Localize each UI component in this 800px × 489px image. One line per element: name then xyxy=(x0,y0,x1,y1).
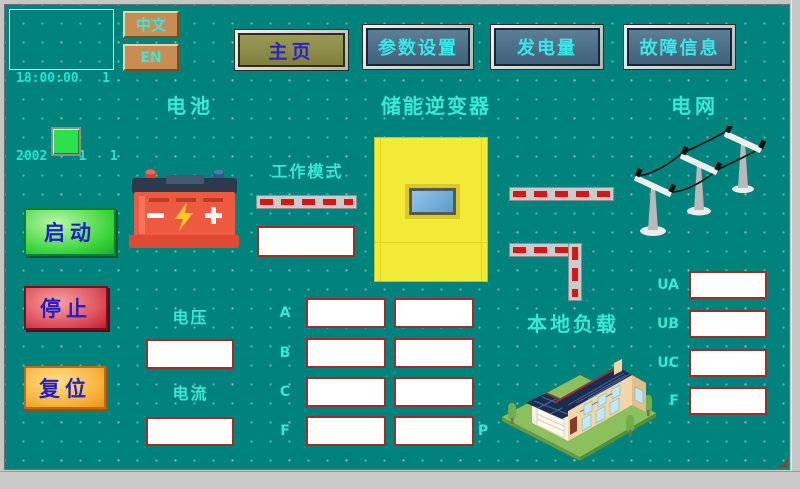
phase-c-grid-value-box[interactable] xyxy=(394,377,474,407)
nav-home-label: 主页 xyxy=(238,33,345,67)
stop-button[interactable]: 停止 xyxy=(24,286,108,330)
clock-display: 18:00:00 1 2002 1 1 xyxy=(9,9,114,70)
inverter-section-label: 储能逆变器 xyxy=(361,90,511,119)
grid-ub-label: UB xyxy=(639,316,679,332)
inverter-to-grid-pipe xyxy=(509,187,614,201)
phase-b-label: B xyxy=(276,345,294,361)
nav-faults-button[interactable]: 故障信息 xyxy=(623,24,736,70)
grid-uc-value-box[interactable] xyxy=(689,349,767,377)
inverter-to-load-pipe-vertical xyxy=(568,243,582,301)
inverter-screen xyxy=(405,184,460,219)
run-indicator-lamp xyxy=(51,127,81,156)
phase-a-label: A xyxy=(276,305,294,321)
work-mode-pipe xyxy=(256,195,357,209)
voltage-value-box[interactable] xyxy=(146,339,234,369)
nav-params-label: 参数设置 xyxy=(366,28,470,66)
reset-button[interactable]: 复位 xyxy=(24,366,106,409)
voltage-label: 电压 xyxy=(163,304,218,328)
local-load-section-label: 本地负载 xyxy=(513,308,633,337)
hmi-window: 18:00:00 1 2002 1 1 中文 EN 主页 参数设置 发电量 故障… xyxy=(0,0,800,489)
nav-generation-label: 发电量 xyxy=(494,28,600,66)
transmission-towers-icon xyxy=(629,126,773,244)
language-en-button[interactable]: EN xyxy=(123,44,179,71)
phase-f-grid-value-box[interactable] xyxy=(394,416,474,446)
inverter-icon xyxy=(374,137,488,282)
window-frame-right xyxy=(791,0,800,489)
clock-time-line: 18:00:00 1 xyxy=(16,66,107,92)
phase-a-grid-value-box[interactable] xyxy=(394,298,474,328)
work-mode-value-box[interactable] xyxy=(257,226,355,257)
phase-c-inverter-value-box[interactable] xyxy=(306,377,386,407)
grid-ua-value-box[interactable] xyxy=(689,271,767,299)
start-button[interactable]: 启动 xyxy=(24,208,116,256)
solar-house-icon xyxy=(498,353,660,461)
p-label: P xyxy=(475,423,491,439)
nav-params-button[interactable]: 参数设置 xyxy=(362,24,474,70)
current-label: 电流 xyxy=(163,380,218,404)
phase-b-grid-value-box[interactable] xyxy=(394,338,474,368)
status-bar xyxy=(0,471,800,489)
grid-f-value-box[interactable] xyxy=(689,387,767,415)
nav-generation-button[interactable]: 发电量 xyxy=(490,24,604,70)
current-value-box[interactable] xyxy=(146,417,234,446)
grid-ub-value-box[interactable] xyxy=(689,310,767,338)
phase-b-inverter-value-box[interactable] xyxy=(306,338,386,368)
resize-handle[interactable] xyxy=(779,460,789,467)
phase-c-label: C xyxy=(276,384,294,400)
battery-section-label: 电池 xyxy=(150,90,230,119)
phase-a-inverter-value-box[interactable] xyxy=(306,298,386,328)
phase-f-inverter-value-box[interactable] xyxy=(306,416,386,446)
grid-section-label: 电网 xyxy=(655,90,735,119)
language-chinese-button[interactable]: 中文 xyxy=(123,11,179,38)
work-mode-label: 工作模式 xyxy=(260,158,355,182)
battery-icon xyxy=(129,169,239,253)
phase-f-label: F xyxy=(276,423,294,439)
hmi-canvas: 18:00:00 1 2002 1 1 中文 EN 主页 参数设置 发电量 故障… xyxy=(4,4,790,470)
nav-home-button[interactable]: 主页 xyxy=(234,29,349,71)
grid-ua-label: UA xyxy=(639,277,679,293)
nav-faults-label: 故障信息 xyxy=(627,28,732,66)
